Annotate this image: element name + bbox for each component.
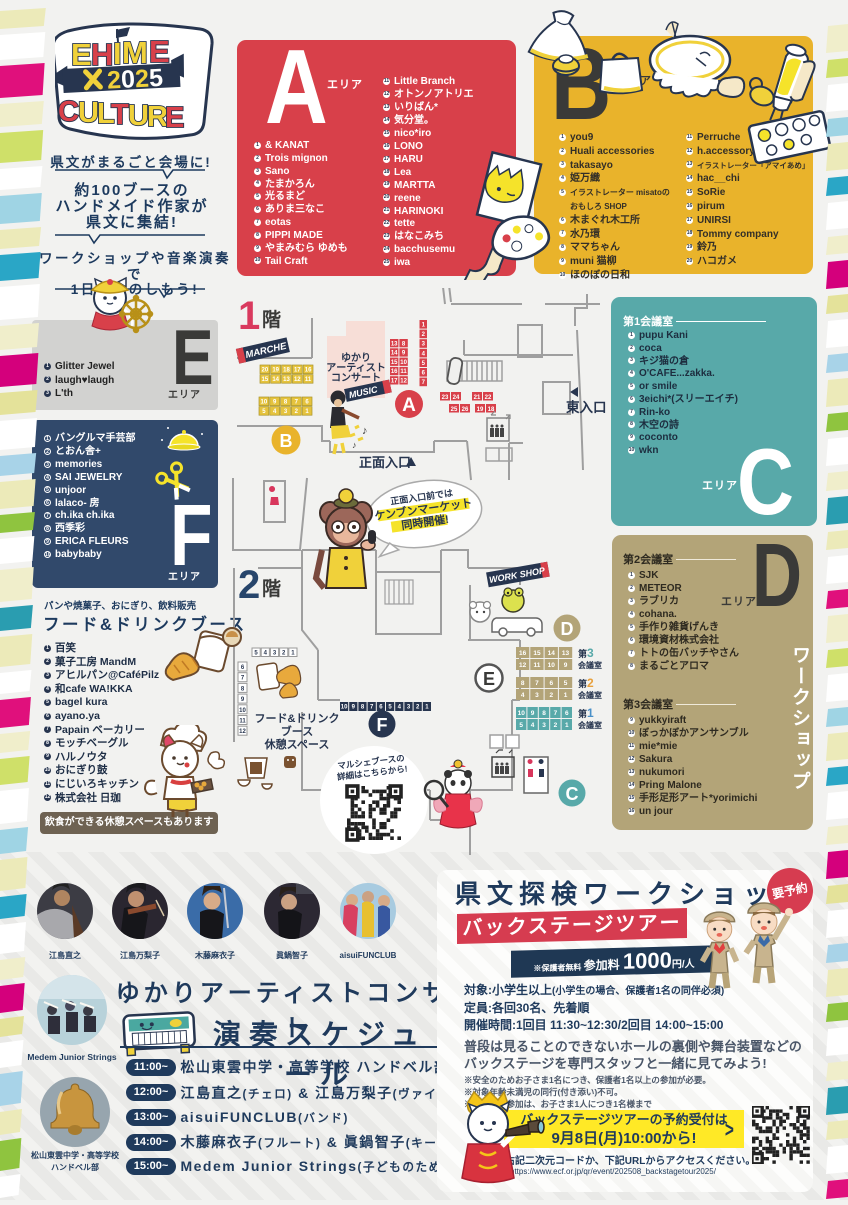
svg-text:11: 11 (305, 377, 312, 383)
svg-text:江島直之: 江島直之 (49, 950, 81, 960)
svg-text:10: 10 (261, 399, 268, 405)
svg-text:U: U (128, 100, 149, 132)
svg-text:会議室: 会議室 (578, 660, 602, 670)
svg-text:10: 10 (518, 710, 526, 717)
svg-text:T: T (111, 99, 129, 131)
svg-text:17: 17 (391, 379, 398, 385)
svg-text:E: E (165, 102, 184, 134)
svg-text:22: 22 (485, 395, 492, 401)
svg-text:F: F (377, 715, 388, 735)
svg-text:7: 7 (554, 710, 558, 717)
svg-text:階: 階 (262, 578, 281, 600)
svg-text:21: 21 (474, 395, 481, 401)
svg-text:5: 5 (564, 680, 568, 687)
svg-text:16: 16 (391, 369, 398, 375)
svg-text:ブース: ブース (281, 724, 313, 738)
svg-text:4: 4 (521, 692, 525, 699)
svg-text:1: 1 (238, 294, 260, 338)
svg-text:15: 15 (262, 377, 269, 383)
svg-text:8: 8 (542, 710, 546, 717)
svg-text:♪: ♪ (352, 440, 357, 450)
svg-text:6: 6 (565, 710, 569, 717)
svg-text:ハンドベル部: ハンドベル部 (51, 1162, 99, 1172)
svg-text:10: 10 (548, 662, 556, 669)
svg-text:14: 14 (391, 351, 398, 357)
svg-text:2: 2 (549, 692, 553, 699)
svg-text:20: 20 (262, 367, 269, 373)
svg-text:19: 19 (477, 407, 484, 413)
svg-text:第2: 第2 (578, 676, 594, 690)
svg-text:10: 10 (341, 705, 348, 711)
svg-text:木藤麻衣子: 木藤麻衣子 (194, 950, 235, 960)
svg-text:11: 11 (239, 719, 246, 725)
svg-text:江島万梨子: 江島万梨子 (120, 950, 160, 960)
svg-text:E: E (71, 37, 92, 72)
svg-text:2: 2 (238, 563, 260, 607)
svg-text:1: 1 (564, 692, 568, 699)
svg-text:9: 9 (564, 662, 568, 669)
svg-text:24: 24 (453, 395, 460, 401)
svg-text:正面入口: 正面入口 (359, 455, 411, 470)
svg-text:12: 12 (239, 729, 246, 735)
svg-text:19: 19 (272, 367, 279, 373)
svg-text:第1: 第1 (578, 706, 594, 720)
svg-text:1: 1 (565, 722, 569, 729)
svg-text:17: 17 (294, 367, 301, 373)
svg-text:11: 11 (534, 662, 541, 669)
svg-text:階: 階 (262, 309, 281, 331)
svg-text:2: 2 (106, 66, 121, 95)
svg-text:4: 4 (531, 722, 535, 729)
svg-text:U: U (78, 97, 99, 129)
svg-text:12: 12 (519, 662, 527, 669)
svg-text:18: 18 (283, 367, 290, 373)
svg-text:13: 13 (562, 650, 570, 657)
svg-text:8: 8 (521, 680, 525, 687)
svg-text:9: 9 (531, 710, 535, 717)
svg-text:10: 10 (400, 360, 407, 366)
svg-text:2: 2 (554, 722, 558, 729)
svg-text:C: C (58, 96, 79, 128)
svg-text:5: 5 (519, 722, 523, 729)
svg-text:2: 2 (134, 65, 149, 94)
svg-text:3: 3 (535, 692, 539, 699)
svg-text:0: 0 (120, 65, 135, 94)
svg-text:A: A (402, 395, 416, 416)
svg-text:14: 14 (548, 650, 556, 657)
svg-text:16: 16 (305, 367, 312, 373)
svg-text:26: 26 (462, 407, 469, 413)
svg-text:眞鍋智子: 眞鍋智子 (276, 950, 308, 960)
svg-text:E: E (483, 669, 495, 689)
svg-text:5: 5 (148, 64, 163, 93)
svg-text:15: 15 (533, 650, 541, 657)
svg-text:11: 11 (400, 369, 407, 375)
svg-text:会議室: 会議室 (578, 720, 602, 730)
svg-text:休憩スペース: 休憩スペース (264, 737, 330, 751)
svg-text:コンサート: コンサート (331, 372, 381, 384)
svg-text:25: 25 (451, 407, 458, 413)
svg-text:13: 13 (391, 341, 398, 347)
svg-text:23: 23 (442, 395, 449, 401)
svg-text:14: 14 (272, 377, 279, 383)
svg-text:12: 12 (294, 377, 301, 383)
svg-text:♪: ♪ (362, 425, 368, 437)
svg-text:東入口: 東入口 (566, 399, 607, 415)
svg-text:D: D (561, 619, 574, 639)
svg-text:7: 7 (535, 680, 539, 687)
svg-text:15: 15 (391, 360, 398, 366)
svg-text:16: 16 (519, 650, 527, 657)
svg-text:6: 6 (549, 680, 553, 687)
svg-text:第3: 第3 (578, 646, 594, 660)
svg-text:10: 10 (239, 708, 246, 714)
svg-text:C: C (566, 784, 579, 804)
svg-text:B: B (280, 431, 293, 451)
svg-text:12: 12 (400, 379, 407, 385)
svg-text:aisuiFUNCLUB: aisuiFUNCLUB (340, 951, 397, 960)
svg-text:3: 3 (542, 722, 546, 729)
svg-text:13: 13 (283, 377, 290, 383)
svg-text:会議室: 会議室 (578, 690, 602, 700)
svg-text:フード&ドリンク: フード&ドリンク (255, 712, 340, 725)
